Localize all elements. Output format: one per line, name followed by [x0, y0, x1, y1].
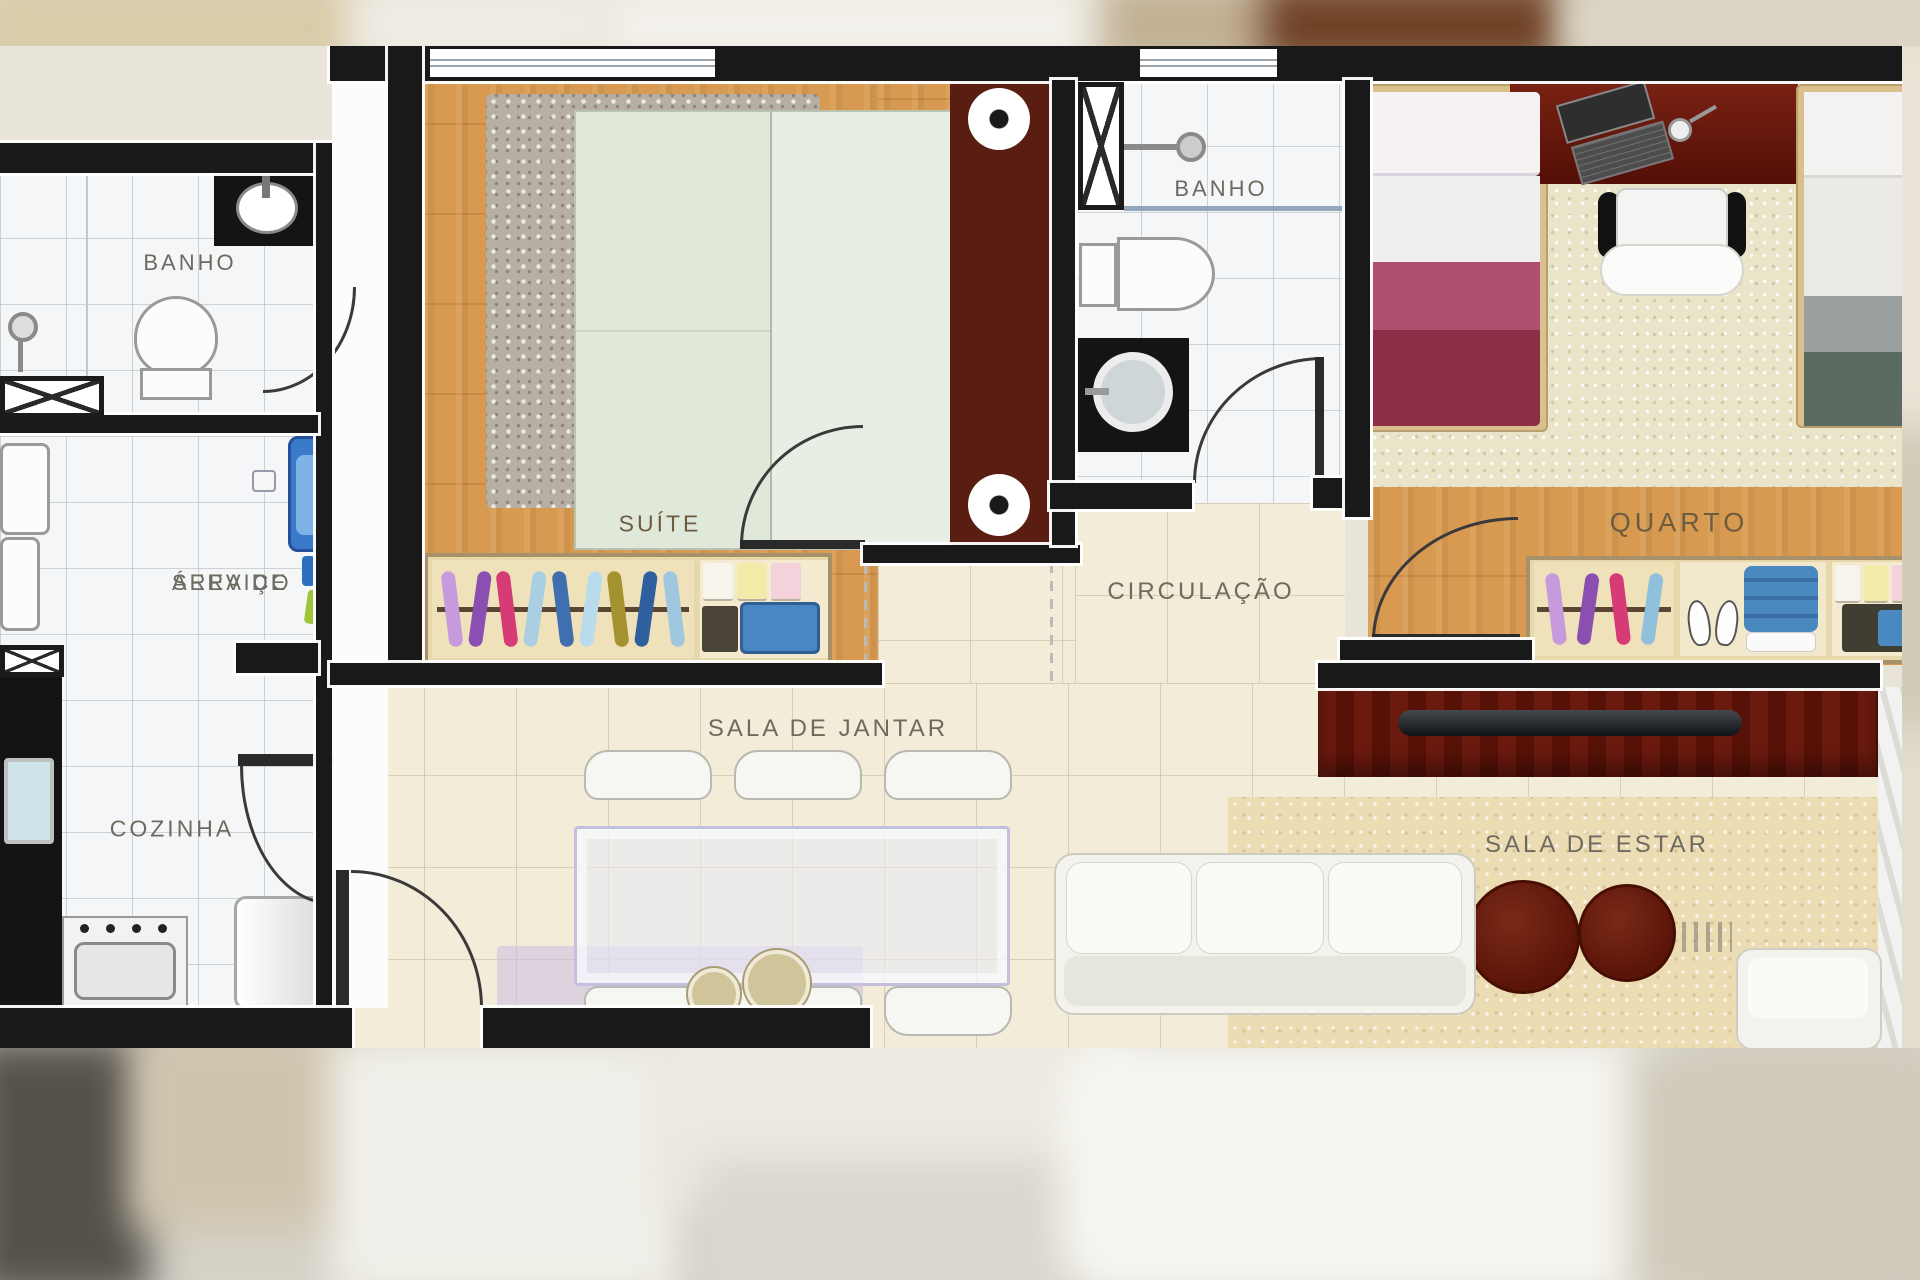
- window-bathroom-2: [1140, 49, 1277, 77]
- blur-top: [0, 0, 1920, 46]
- shower-head-icon-2: [1176, 132, 1206, 162]
- single-bed-1-blanket-pink: [1368, 262, 1540, 330]
- wall-left-wing-top: [0, 143, 320, 173]
- wall-suite-bathroom: [1052, 80, 1075, 545]
- clothes-bar: [467, 571, 491, 648]
- single-bed-1-blanket-maroon: [1368, 330, 1540, 426]
- blur-blob: [1560, 0, 1920, 46]
- sink-tap-icon-2: [1085, 388, 1109, 395]
- cleaning-bottle-1: [302, 556, 315, 586]
- jeans-stack: [1744, 566, 1818, 632]
- soap-dish: [252, 470, 276, 492]
- room-label-dining: SALA DE JANTAR: [708, 715, 948, 743]
- blur-blob: [0, 1048, 150, 1280]
- appliance: [0, 537, 40, 631]
- dining-chair-6: [884, 986, 1012, 1036]
- rug-fringe-right: [1682, 922, 1732, 952]
- wall-left-wing-right: [316, 143, 332, 1048]
- clothes-bar: [523, 571, 547, 648]
- room-label-bathroom-2: BANHO: [1174, 176, 1267, 202]
- window-service-area: [0, 645, 64, 677]
- blur-bottom: [0, 1048, 1920, 1280]
- pouf-2: [744, 950, 810, 1016]
- blur-blob: [1902, 46, 1920, 446]
- blur-blob: [1902, 426, 1920, 726]
- wall-bottom-dining: [483, 1008, 870, 1050]
- clothes-bar: [607, 571, 630, 648]
- door-leaf-entrance: [336, 870, 349, 1010]
- room-label-kitchen: COZINHA: [110, 816, 235, 843]
- shower-arm: [1124, 144, 1182, 150]
- shower-box-door-2: [1078, 82, 1124, 210]
- toilet-bowl-icon: [134, 296, 218, 376]
- clothes-bar: [579, 571, 603, 648]
- toilet-tank-icon: [140, 368, 212, 400]
- blur-blob: [0, 0, 360, 46]
- suite-bed-crease: [576, 330, 770, 332]
- door-leaf-bathroom-2: [1315, 357, 1324, 485]
- room-label-bathroom-1: BANHO: [143, 250, 236, 276]
- blur-blob: [1100, 0, 1270, 46]
- clothes-bar: [551, 571, 574, 648]
- armchair-cushion: [1748, 958, 1868, 1018]
- sofa-cushion-2: [1196, 862, 1324, 954]
- window-suite: [430, 49, 715, 77]
- floor-plan: BANHO ÁREA DE SERVIÇO COZINHA SUÍTE BANH…: [0, 0, 1920, 1280]
- bedside-lamp-1: [968, 88, 1030, 150]
- clothes-bar: [1545, 572, 1568, 645]
- clothes-bar: [496, 571, 519, 648]
- blur-blob: [1260, 0, 1570, 46]
- folded-clothes-stack: [1835, 565, 1860, 603]
- blur-blob: [1630, 1048, 1920, 1280]
- sofa-back: [1064, 956, 1466, 1006]
- clothes-bar: [1576, 572, 1600, 645]
- shower-head-icon: [8, 312, 38, 342]
- wall-suite-left: [388, 45, 422, 685]
- clothes-bar: [440, 571, 463, 648]
- room-label-service-area-line2: SERVIÇO: [172, 570, 292, 596]
- circulation-floor: [878, 548, 1078, 683]
- toilet-tank-icon-2: [1079, 243, 1117, 307]
- folded-clothes-stack: [771, 563, 801, 601]
- round-table-2: [1578, 884, 1676, 982]
- wall-service-kitchen: [236, 643, 318, 673]
- dining-chair-3: [884, 750, 1012, 800]
- suite-shelf-blue-box: [740, 602, 820, 654]
- clothes-bar: [1609, 572, 1632, 645]
- shower-box-door-1: [0, 376, 104, 418]
- toilet-bowl-icon-2: [1117, 237, 1215, 311]
- wall-quarto-left: [1345, 80, 1370, 517]
- blur-right: [1902, 46, 1920, 1048]
- room-label-living: SALA DE ESTAR: [1485, 831, 1709, 859]
- blur-blob: [130, 1048, 360, 1228]
- clothes-bar: [1640, 572, 1664, 645]
- tv-icon: [1398, 710, 1742, 736]
- white-garment: [1746, 632, 1816, 652]
- clothes-bar: [634, 571, 658, 648]
- stove-knob-3: [132, 924, 141, 933]
- desk-lamp-icon: [1668, 118, 1692, 142]
- blur-blob: [330, 1048, 680, 1280]
- folded-clothes-stack: [737, 563, 767, 601]
- wall-bathroom-2-bottom-left: [1050, 483, 1192, 509]
- kitchen-sink-icon: [4, 758, 54, 844]
- suite-shelf-dark-box: [702, 606, 738, 652]
- quarto-wardrobe-clothes: [1534, 562, 1674, 656]
- suite-wardrobe-clothes: [432, 560, 694, 658]
- dining-chair-1: [584, 750, 712, 800]
- sofa-cushion-3: [1328, 862, 1462, 954]
- wall-bottom-left: [0, 1008, 352, 1050]
- bedside-lamp-2: [968, 474, 1030, 536]
- single-bed-1-sheet: [1368, 176, 1540, 262]
- dining-chair-2: [734, 750, 862, 800]
- desk-chair-back: [1600, 244, 1744, 296]
- room-label-circulation: CIRCULAÇÃO: [1107, 578, 1294, 606]
- stove-knob-4: [158, 924, 167, 933]
- room-label-suite: SUÍTE: [619, 511, 702, 538]
- shower-glass-divider: [1124, 206, 1345, 211]
- folded-clothes-stack: [703, 563, 733, 601]
- corridor-floor: [332, 80, 388, 1008]
- floor-threshold-1: [864, 548, 867, 682]
- sofa-cushion-1: [1066, 862, 1192, 954]
- blur-blob: [1060, 1048, 1680, 1280]
- wall-suite-dining: [330, 663, 882, 685]
- clothes-bar: [662, 571, 685, 648]
- kitchen-counter-corner: [0, 950, 62, 1008]
- blur-blob: [350, 0, 610, 46]
- shower-hose: [18, 340, 23, 372]
- stove-knob-2: [106, 924, 115, 933]
- folded-clothes-stack: [1864, 565, 1889, 603]
- wall-living-top: [1318, 663, 1880, 688]
- door-leaf-suite: [740, 540, 865, 549]
- sink-tap-icon: [262, 176, 270, 198]
- stove-knob-1: [80, 924, 89, 933]
- blur-blob: [600, 0, 1120, 46]
- wall-suite-circulation: [863, 545, 1080, 563]
- round-table-1: [1466, 880, 1580, 994]
- oven-top: [74, 942, 176, 1000]
- washing-machine: [0, 443, 50, 535]
- single-bed-1-pillow: [1368, 92, 1540, 176]
- room-label-quarto: QUARTO: [1610, 508, 1749, 539]
